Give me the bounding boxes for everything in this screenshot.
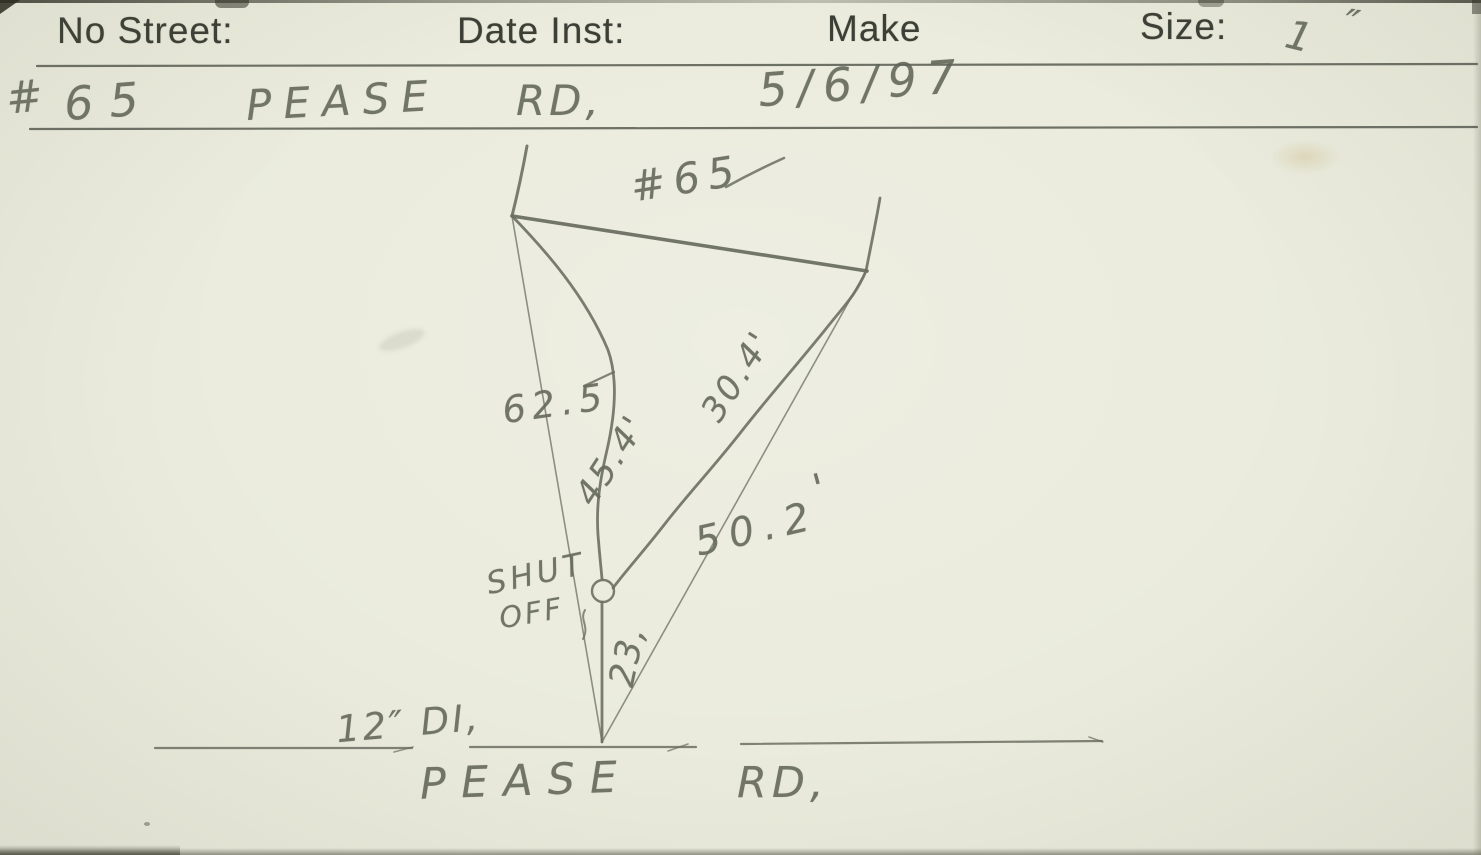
shutoff-valve-circle — [592, 580, 614, 602]
road-line-right — [741, 741, 1102, 744]
record-card: No Street: Date Inst: Make Size: # 65 PE… — [0, 0, 1481, 855]
house-front-line — [512, 216, 867, 271]
road-suffix-label: RD, — [737, 758, 829, 808]
plot-sketch — [0, 0, 1481, 855]
house-left-wall-tick — [512, 146, 527, 216]
road-name-label: PEASE — [419, 752, 633, 809]
printed-rule-top — [37, 64, 1477, 66]
house-right-wall-tick — [866, 198, 880, 271]
printed-rule-bottom — [30, 127, 1477, 129]
